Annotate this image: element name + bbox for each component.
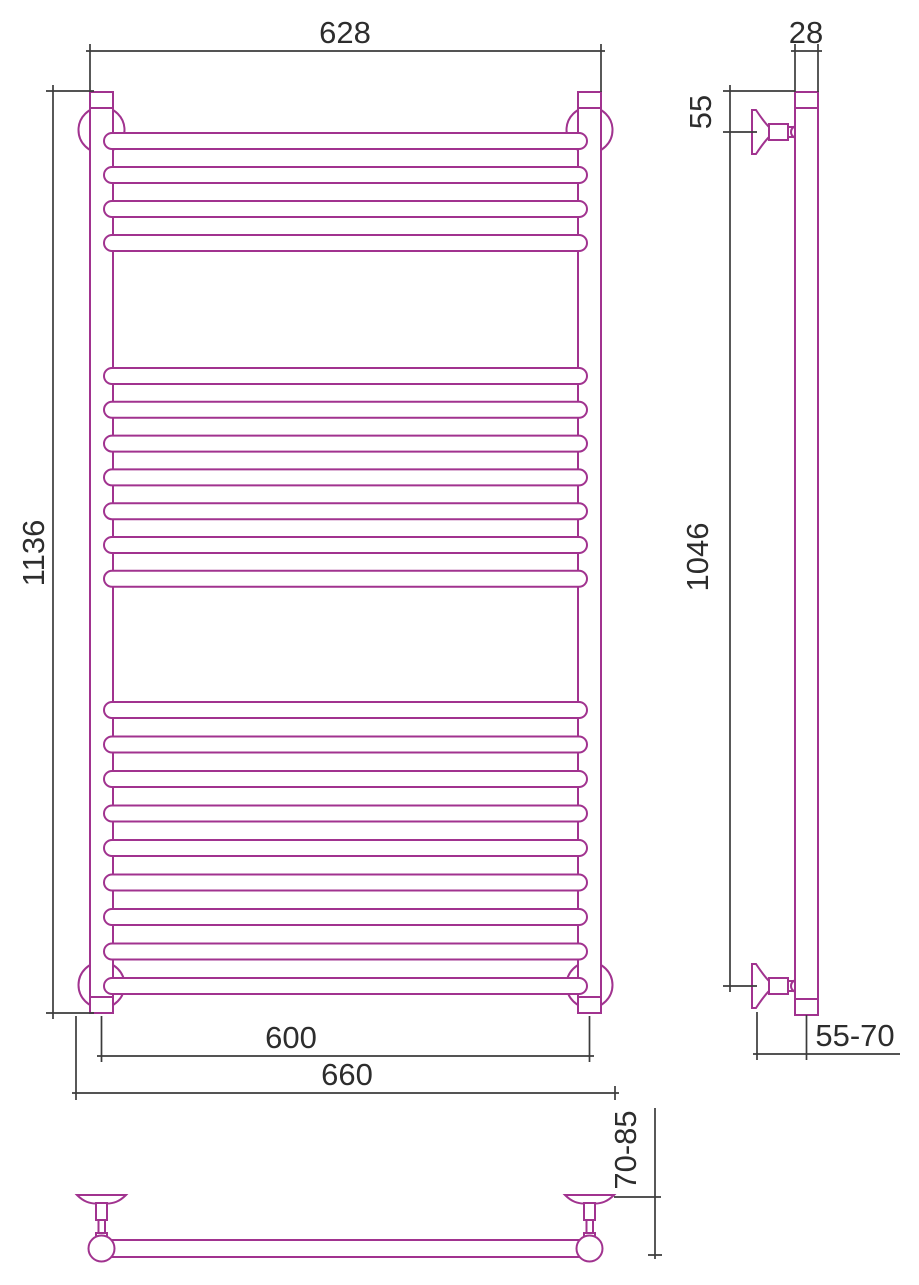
dim-bracket-span: 1046 bbox=[680, 523, 715, 592]
technical-drawing: 628 1136 600 660 28 55 1046 55-70 bbox=[0, 0, 919, 1280]
dim-wall-depth: 55-70 bbox=[815, 1018, 894, 1053]
dim-mount-width: 660 bbox=[321, 1057, 373, 1092]
tube-rung bbox=[104, 702, 587, 718]
side-view bbox=[752, 92, 818, 1015]
dim-top-offset: 55 bbox=[683, 95, 718, 129]
tube-rung bbox=[104, 133, 587, 149]
tube-rung bbox=[104, 469, 587, 485]
bottom-tube-end-right bbox=[577, 1236, 603, 1262]
bracket-stem bbox=[96, 1203, 107, 1220]
drawing-page: 628 1136 600 660 28 55 1046 55-70 bbox=[0, 0, 919, 1280]
bracket-stem bbox=[769, 124, 788, 140]
bottom-tube bbox=[102, 1240, 590, 1257]
bracket-stem bbox=[769, 978, 788, 994]
tube-rung bbox=[104, 875, 587, 891]
tube-rung bbox=[104, 368, 587, 384]
tube-rung bbox=[104, 167, 587, 183]
bracket-pin bbox=[587, 1220, 594, 1233]
tube-rungs bbox=[104, 133, 587, 994]
tube-rung bbox=[104, 571, 587, 587]
side-tube bbox=[795, 92, 818, 1015]
tube-rung bbox=[104, 537, 587, 553]
tube-rung bbox=[104, 503, 587, 519]
bottom-bracket-right bbox=[565, 1195, 614, 1240]
tube-rung bbox=[104, 436, 587, 452]
dim-front-height: 1136 bbox=[16, 520, 51, 587]
tube-rung bbox=[104, 402, 587, 418]
dim-mount-depth: 70-85 bbox=[608, 1110, 643, 1189]
tube-rung bbox=[104, 909, 587, 925]
dim-axis-width: 600 bbox=[265, 1020, 317, 1055]
tube-rung bbox=[104, 944, 587, 960]
tube-rung bbox=[104, 978, 587, 994]
tube-rung bbox=[104, 771, 587, 787]
bracket-pin bbox=[99, 1220, 106, 1233]
bracket-stem bbox=[584, 1203, 595, 1220]
bottom-tube-end-left bbox=[89, 1236, 115, 1262]
tube-rung bbox=[104, 806, 587, 822]
front-view bbox=[79, 92, 613, 1013]
tube-rung bbox=[104, 201, 587, 217]
tube-rung bbox=[104, 737, 587, 753]
tube-rung bbox=[104, 840, 587, 856]
dim-front-width: 628 bbox=[319, 15, 371, 50]
dim-tube-diameter: 28 bbox=[789, 15, 823, 50]
bottom-view bbox=[77, 1195, 614, 1262]
tube-rung bbox=[104, 235, 587, 251]
bottom-bracket-left bbox=[77, 1195, 126, 1240]
